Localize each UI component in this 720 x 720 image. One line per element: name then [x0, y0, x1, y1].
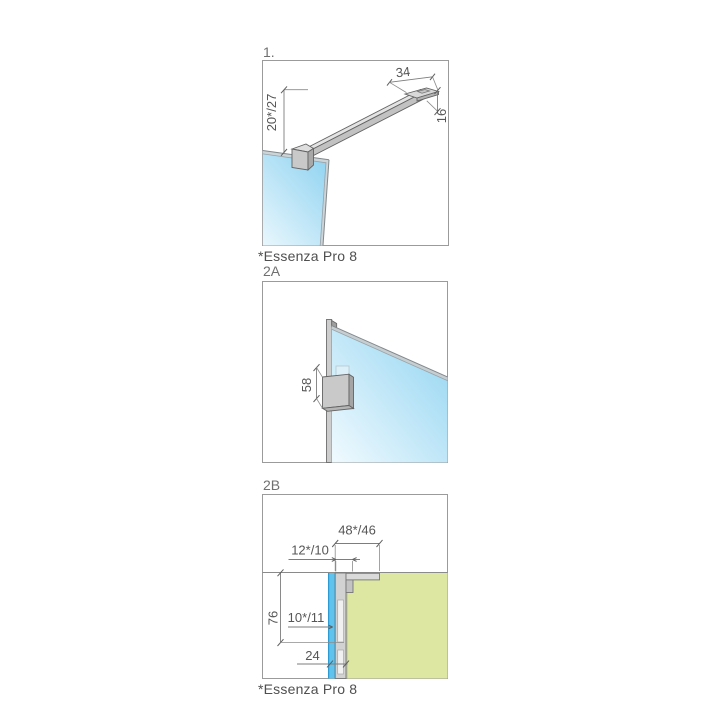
figure-2b-section-diagram: 48*/46 12*/10 76 10*/1 [262, 494, 448, 679]
dimension-bracket-depth: 48*/46 [332, 523, 382, 571]
dimension-adjustment-range-value: 10*/11 [288, 610, 325, 625]
dimension-glass-to-bar-value: 20*/27 [264, 94, 279, 132]
figure-2a-label: 2A [263, 264, 280, 279]
wall-profile-section [335, 573, 346, 679]
figure-1-support-bar-diagram: 20*/27 34 [262, 60, 449, 246]
dimension-adjustment-range: 10*/11 [288, 610, 333, 629]
figure-2b-caption: *Essenza Pro 8 [258, 682, 357, 697]
figure-1-label: 1. [263, 45, 275, 60]
mounting-bracket-2a [323, 374, 354, 411]
figure-1-caption: *Essenza Pro 8 [258, 249, 357, 264]
wall-section [347, 573, 448, 679]
figure-2a-wall-bracket-diagram: 58 [262, 281, 448, 463]
dimension-bracket-width-value: 34 [395, 64, 411, 81]
installation-instruction-page: 1. 20*/27 [0, 0, 720, 720]
dimension-profile-length-value: 76 [266, 611, 281, 625]
dimension-wall-offset-value: 12*/10 [291, 543, 329, 558]
dimension-bar-end-height-value: 16 [434, 109, 449, 123]
glass-clamp [292, 144, 314, 170]
dimension-profile-width-value: 24 [305, 648, 319, 663]
dimension-bracket-height-value: 58 [299, 378, 314, 392]
profile-adjustment-slot [338, 600, 344, 642]
support-bar [310, 90, 425, 156]
dimension-bracket-height: 58 [299, 364, 322, 408]
figure-2b-label: 2B [263, 478, 280, 493]
dimension-bracket-width: 34 [387, 64, 438, 93]
dimension-wall-offset: 12*/10 [289, 543, 361, 572]
profile-lower-slot [338, 650, 344, 674]
dimension-bracket-depth-value: 48*/46 [338, 523, 376, 538]
